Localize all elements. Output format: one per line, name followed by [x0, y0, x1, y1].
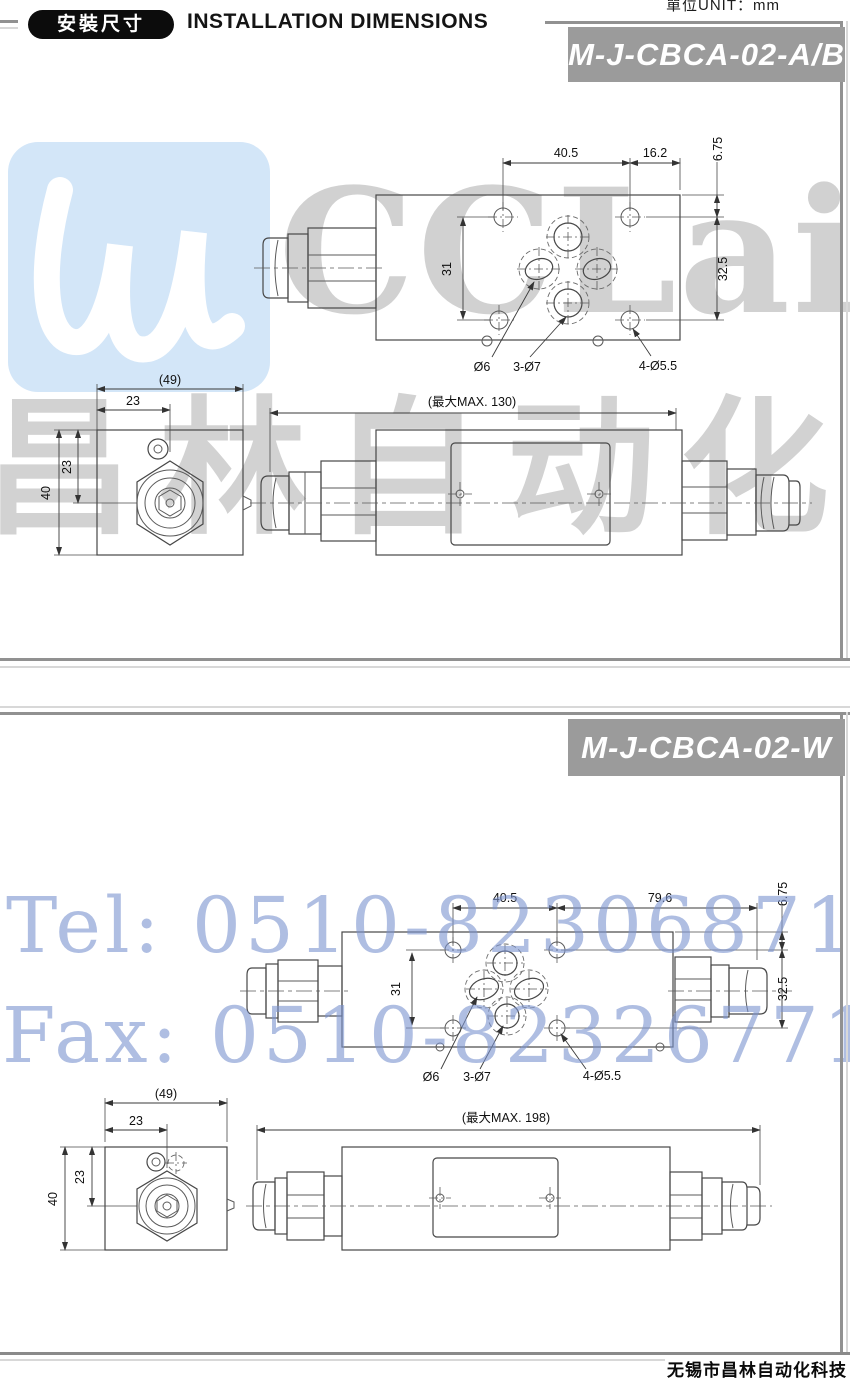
p2-end-view: (49) 23 40 23	[46, 1087, 234, 1250]
port-label-p1-4d55: 4-Ø5.5	[639, 359, 677, 373]
panel1-border-right-echo	[846, 21, 848, 661]
p1-side-view: (最大MAX. 130)	[250, 395, 812, 555]
dim-label-p1-16-2: 16.2	[643, 146, 667, 160]
model-bar-w: M-J-CBCA-02-W	[568, 719, 845, 776]
dim-label-p2-23v: 23	[73, 1170, 87, 1184]
unit-label: 單位UNIT：mm	[666, 0, 780, 15]
catalog-page: CCLair 昌林自动化	[0, 0, 850, 1384]
dim-label-p1-49: (49)	[159, 373, 181, 387]
dim-label-p1-23v: 23	[60, 460, 74, 474]
footer-rule-echo	[0, 1359, 665, 1361]
dim-label-p1-23h: 23	[126, 394, 140, 408]
p1-end-view: (49) 23 40 23	[39, 373, 251, 555]
panel1-border-top	[545, 21, 843, 24]
section-badge: 安裝尺寸	[28, 10, 174, 39]
page-title: INSTALLATION DIMENSIONS	[187, 10, 488, 34]
panel2-border-top	[0, 712, 850, 715]
footer-company: 无锡市昌林自动化科技	[667, 1356, 847, 1381]
tel-watermark: Tel: 0510-82306871	[6, 888, 850, 965]
dim-label-p1-32-5: 32.5	[716, 257, 730, 281]
p1-top-view: 40.5 16.2 6.75 32.5 31 Ø6 3-Ø7 4-Ø5.5	[254, 137, 730, 374]
dim-label-p2-49: (49)	[155, 1087, 177, 1101]
dim-label-p1-max130: (最大MAX. 130)	[428, 395, 516, 409]
dim-label-p2-40: 40	[46, 1192, 60, 1206]
panel1-border-bottom-echo	[0, 666, 850, 668]
port-label-p1-d6: Ø6	[474, 360, 491, 374]
dim-label-p1-40-5: 40.5	[554, 146, 578, 160]
technical-drawings: 40.5 16.2 6.75 32.5 31 Ø6 3-Ø7 4-Ø5.5	[0, 0, 850, 1384]
dim-label-p2-23h: 23	[129, 1114, 143, 1128]
port-label-p1-3d7: 3-Ø7	[513, 360, 541, 374]
dim-label-p2-max198: (最大MAX. 198)	[462, 1111, 550, 1125]
panel1-border-right	[840, 21, 843, 661]
panel1-border-bottom	[0, 658, 850, 661]
fax-watermark: Fax: 0510-82326771	[2, 998, 850, 1075]
p2-side-view: (最大MAX. 198)	[246, 1111, 772, 1250]
panel2-border-top-echo	[0, 706, 850, 708]
panel2-border-right-echo	[846, 712, 848, 1355]
footer-rule	[0, 1352, 850, 1355]
dim-label-p1-40: 40	[39, 486, 53, 500]
model-bar-ab: M-J-CBCA-02-A/B	[568, 27, 845, 82]
header-rule-left-echo	[0, 27, 18, 29]
dim-label-p1-6-75: 6.75	[711, 137, 725, 161]
dim-label-p1-31: 31	[440, 262, 454, 276]
header-rule-left	[0, 20, 18, 23]
panel2-border-right	[840, 712, 843, 1355]
